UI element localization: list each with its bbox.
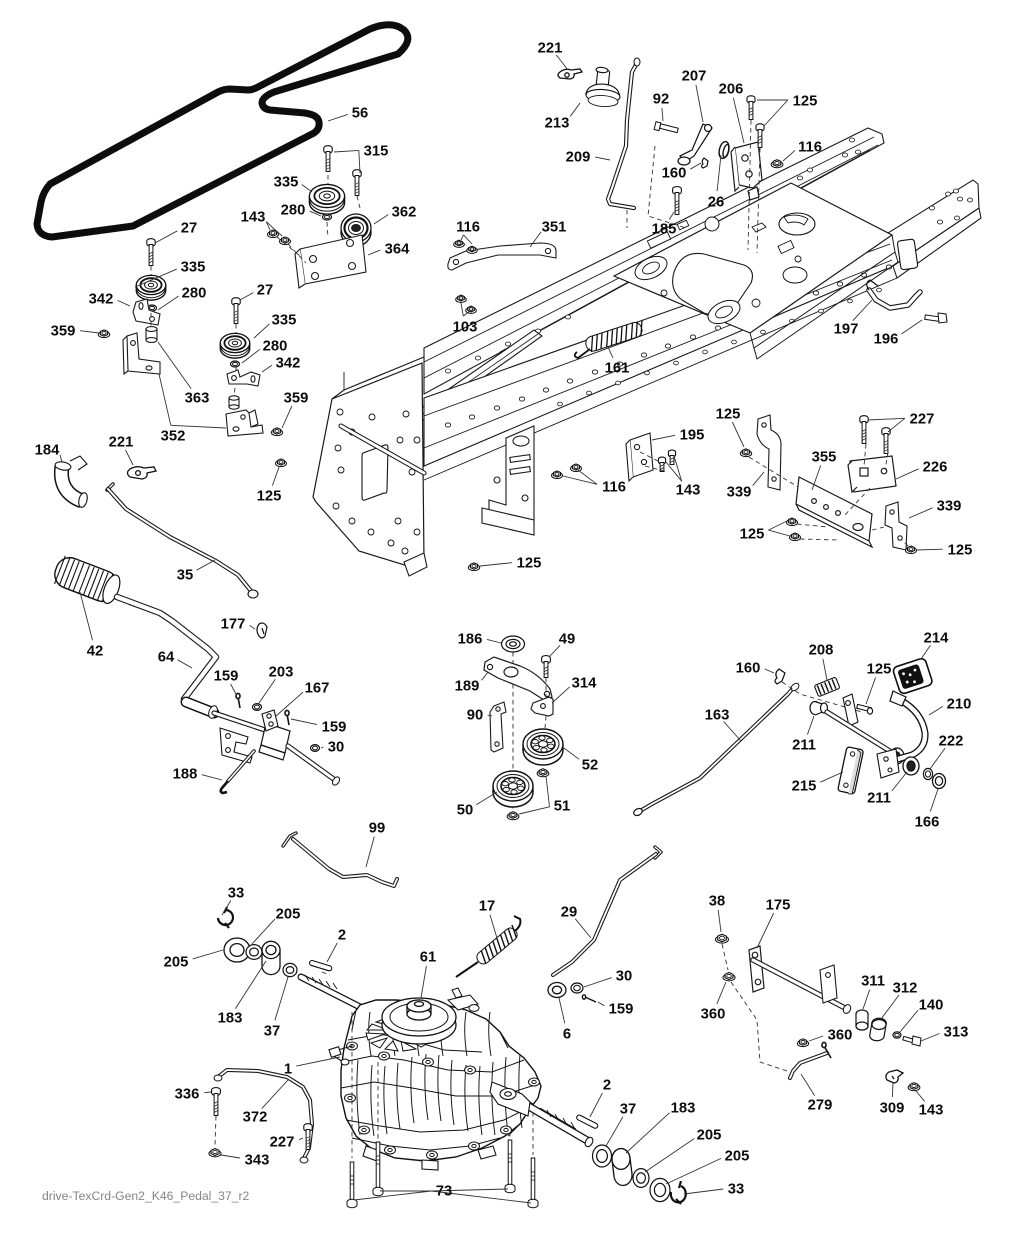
svg-text:177: 177: [221, 616, 246, 632]
svg-text:189: 189: [455, 678, 480, 694]
svg-text:280: 280: [263, 338, 288, 354]
svg-text:221: 221: [109, 434, 134, 450]
svg-text:160: 160: [662, 165, 687, 181]
svg-text:drive-TexCrd-Gen2_K46_Pedal_37: drive-TexCrd-Gen2_K46_Pedal_37_r2: [42, 1189, 250, 1203]
svg-text:364: 364: [385, 241, 410, 257]
svg-text:2: 2: [338, 927, 346, 943]
svg-text:360: 360: [701, 1006, 726, 1022]
svg-text:352: 352: [161, 428, 186, 444]
svg-text:205: 205: [164, 954, 189, 970]
svg-text:209: 209: [566, 149, 591, 165]
svg-text:315: 315: [364, 143, 389, 159]
svg-text:167: 167: [305, 680, 330, 696]
svg-text:343: 343: [245, 1152, 270, 1168]
svg-text:160: 160: [736, 660, 761, 676]
svg-text:125: 125: [793, 93, 818, 109]
svg-text:35: 35: [177, 567, 193, 583]
svg-text:90: 90: [467, 707, 483, 723]
svg-text:210: 210: [947, 696, 972, 712]
svg-text:363: 363: [185, 390, 210, 406]
svg-text:312: 312: [893, 980, 918, 996]
svg-text:279: 279: [808, 1097, 833, 1113]
svg-text:208: 208: [809, 642, 834, 658]
svg-text:27: 27: [257, 282, 273, 298]
svg-text:49: 49: [559, 631, 575, 647]
svg-text:175: 175: [766, 897, 791, 913]
svg-text:143: 143: [919, 1102, 944, 1118]
svg-text:207: 207: [682, 68, 707, 84]
svg-text:351: 351: [542, 219, 567, 235]
svg-text:92: 92: [653, 91, 669, 107]
svg-text:222: 222: [939, 733, 964, 749]
svg-text:227: 227: [270, 1134, 295, 1150]
svg-text:125: 125: [716, 406, 741, 422]
svg-text:372: 372: [243, 1109, 268, 1125]
svg-text:336: 336: [175, 1086, 200, 1102]
svg-text:38: 38: [709, 893, 725, 909]
svg-text:116: 116: [798, 139, 822, 155]
svg-text:103: 103: [453, 319, 478, 335]
svg-text:359: 359: [51, 323, 76, 339]
svg-text:116: 116: [456, 219, 480, 235]
svg-text:313: 313: [944, 1024, 969, 1040]
svg-text:311: 311: [861, 973, 885, 989]
svg-text:211: 211: [867, 790, 891, 806]
svg-text:99: 99: [369, 820, 385, 836]
svg-text:213: 213: [545, 115, 570, 131]
svg-text:206: 206: [719, 81, 744, 97]
svg-text:166: 166: [915, 814, 940, 830]
svg-text:125: 125: [867, 661, 892, 677]
svg-text:73: 73: [436, 1183, 452, 1199]
svg-text:339: 339: [937, 498, 962, 514]
svg-text:163: 163: [705, 707, 730, 723]
svg-text:50: 50: [457, 802, 473, 818]
svg-text:143: 143: [676, 482, 701, 498]
svg-text:211: 211: [792, 737, 816, 753]
svg-text:203: 203: [269, 664, 294, 680]
svg-text:362: 362: [392, 204, 417, 220]
svg-text:42: 42: [87, 643, 103, 659]
svg-text:6: 6: [563, 1026, 571, 1042]
svg-text:125: 125: [948, 542, 973, 558]
svg-text:37: 37: [620, 1101, 636, 1117]
svg-text:221: 221: [538, 40, 563, 56]
svg-text:196: 196: [874, 331, 899, 347]
svg-text:29: 29: [561, 904, 577, 920]
svg-text:205: 205: [697, 1127, 722, 1143]
svg-text:26: 26: [708, 194, 724, 210]
svg-text:159: 159: [214, 668, 239, 684]
svg-text:143: 143: [241, 209, 266, 225]
svg-text:17: 17: [479, 898, 495, 914]
svg-text:280: 280: [281, 202, 306, 218]
svg-text:116: 116: [602, 479, 626, 495]
svg-text:140: 140: [919, 997, 944, 1013]
svg-text:33: 33: [228, 885, 244, 901]
svg-text:226: 226: [923, 459, 948, 475]
svg-text:51: 51: [554, 798, 570, 814]
svg-text:215: 215: [792, 778, 817, 794]
svg-text:197: 197: [834, 321, 859, 337]
svg-text:214: 214: [924, 630, 949, 646]
svg-text:355: 355: [812, 449, 837, 465]
svg-text:195: 195: [680, 427, 705, 443]
svg-text:359: 359: [284, 390, 309, 406]
svg-text:159: 159: [322, 719, 347, 735]
svg-text:342: 342: [89, 291, 114, 307]
svg-text:188: 188: [173, 766, 198, 782]
svg-text:1: 1: [284, 1061, 292, 1077]
svg-text:56: 56: [352, 105, 368, 121]
svg-text:185: 185: [652, 221, 677, 237]
svg-text:184: 184: [35, 442, 60, 458]
svg-text:30: 30: [616, 968, 632, 984]
svg-text:161: 161: [605, 360, 630, 376]
svg-text:61: 61: [420, 949, 436, 965]
svg-text:33: 33: [728, 1181, 744, 1197]
svg-text:2: 2: [603, 1077, 611, 1093]
svg-text:159: 159: [609, 1001, 634, 1017]
svg-text:335: 335: [274, 174, 299, 190]
svg-text:183: 183: [671, 1100, 696, 1116]
svg-text:27: 27: [181, 220, 197, 236]
svg-text:125: 125: [517, 555, 542, 571]
svg-text:314: 314: [572, 675, 597, 691]
svg-text:64: 64: [158, 649, 175, 665]
svg-text:125: 125: [257, 488, 282, 504]
svg-text:227: 227: [910, 411, 935, 427]
svg-text:335: 335: [272, 312, 297, 328]
svg-text:342: 342: [276, 355, 301, 371]
svg-text:125: 125: [740, 526, 765, 542]
svg-text:183: 183: [218, 1010, 243, 1026]
svg-text:339: 339: [727, 484, 752, 500]
svg-text:186: 186: [458, 631, 483, 647]
svg-text:360: 360: [828, 1027, 853, 1043]
svg-text:37: 37: [264, 1023, 280, 1039]
svg-text:309: 309: [880, 1100, 905, 1116]
svg-text:335: 335: [181, 259, 206, 275]
svg-text:205: 205: [276, 906, 301, 922]
svg-text:280: 280: [182, 285, 207, 301]
svg-text:205: 205: [725, 1148, 750, 1164]
svg-text:52: 52: [582, 757, 598, 773]
svg-text:30: 30: [328, 739, 344, 755]
